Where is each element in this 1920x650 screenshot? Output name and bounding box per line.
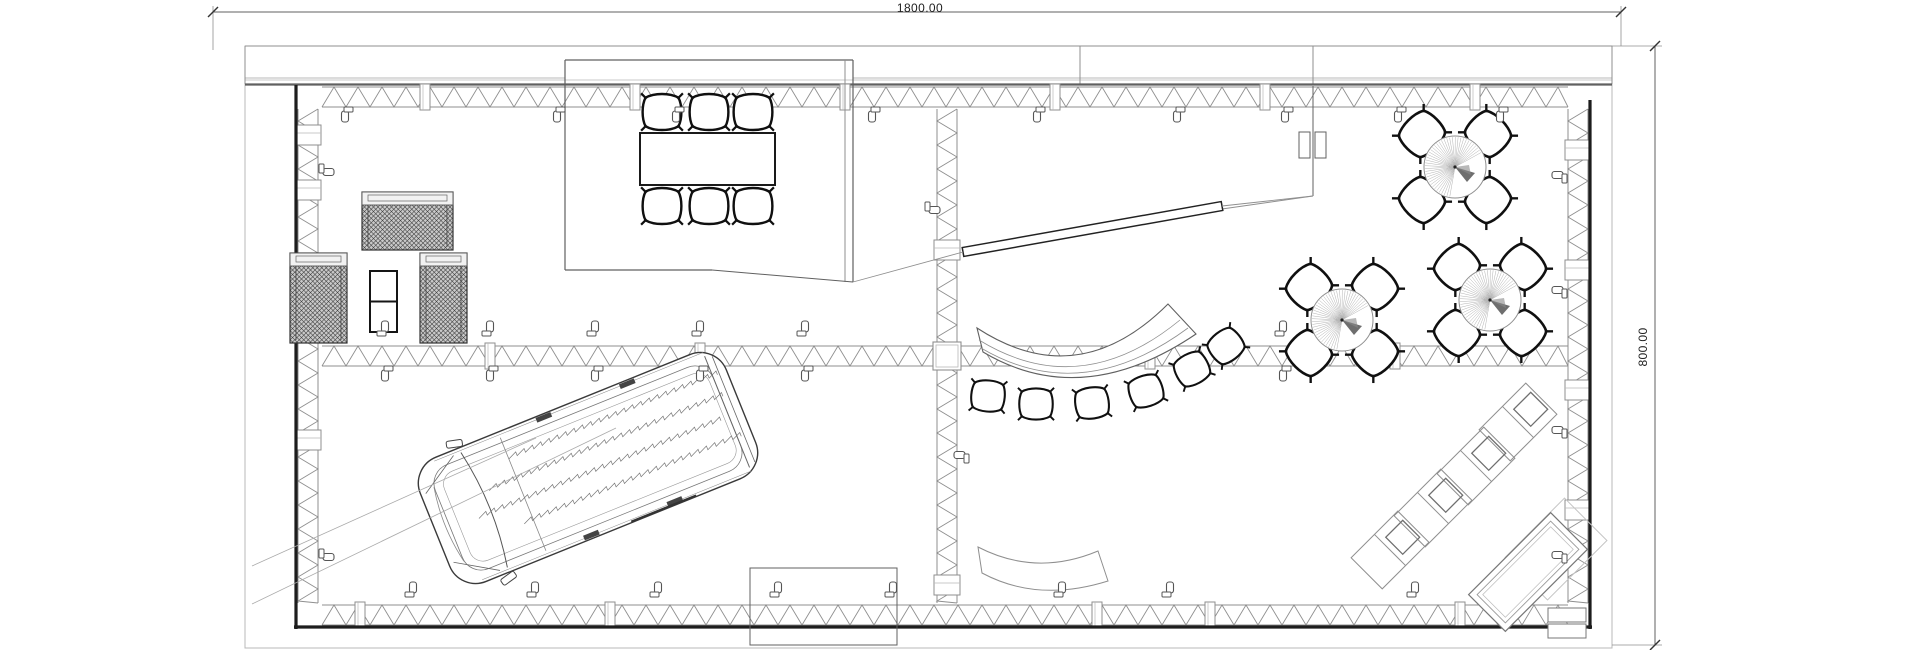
truss-clamp-icon (482, 321, 494, 336)
floor-plan-page: { "drawing": { "type": "architectural-fl… (0, 0, 1920, 650)
lounger (1437, 427, 1515, 505)
counter-stool (1018, 388, 1054, 420)
lounger (1394, 469, 1472, 547)
truss-clamp-icon (1552, 172, 1567, 184)
counter-stool (1202, 322, 1250, 370)
meeting-chair (641, 187, 683, 224)
truss-clamp-icon (802, 366, 814, 381)
truss-clamp-icon (954, 452, 969, 464)
counter-stool (969, 378, 1008, 413)
lounger (1351, 511, 1429, 589)
truss-clamp-icon (869, 107, 881, 122)
lounger (1479, 383, 1557, 461)
meeting-chair (688, 93, 730, 130)
van-top-view (406, 334, 770, 602)
curved-bench (978, 547, 1108, 590)
truss-clamp-icon (692, 321, 704, 336)
meeting-chair (732, 93, 774, 130)
truss-clamp-icon (650, 582, 662, 597)
wall-junction (933, 342, 961, 370)
truss-clamp-icon (1552, 427, 1567, 439)
counter-stool (1072, 384, 1112, 421)
meeting-table-group (640, 93, 775, 224)
round-table (1424, 136, 1486, 198)
truss-clamp-icon (1162, 582, 1174, 597)
lounge-group (290, 192, 467, 343)
truss-clamp-icon (342, 107, 354, 122)
truss-clamp-icon (1282, 107, 1294, 122)
truss-clamp-icon (319, 164, 334, 176)
diagonal-counter (853, 196, 1313, 282)
counter-stool (1168, 346, 1215, 391)
truss-clamp-icon (592, 366, 604, 381)
glass-partition (1222, 86, 1326, 209)
round-table (1459, 269, 1521, 331)
meeting-chair (688, 187, 730, 224)
truss-clamp-icon (1407, 582, 1419, 597)
cafe-table-group (1427, 237, 1553, 363)
annex-outline (750, 568, 897, 645)
truss-clamp-icon (1395, 107, 1407, 122)
curved-counter (969, 304, 1251, 422)
sofa (362, 192, 453, 250)
wall-top-truss (322, 84, 1568, 110)
truss-clamp-icon (1174, 107, 1186, 122)
truss-clamp-icon (1034, 107, 1046, 122)
truss-clamp-icon (587, 321, 599, 336)
armchair (420, 253, 467, 343)
truss-clamp-icon (527, 582, 539, 597)
wall-bottom-truss (322, 602, 1568, 628)
cafe-table-group (1392, 104, 1518, 230)
truss-clamp-icon (885, 582, 897, 597)
cafe-table-group (1279, 257, 1405, 383)
dimension-height-label: 800.00 (1636, 327, 1650, 366)
truss-clamp-icon (770, 582, 782, 597)
counter-stool (1124, 370, 1168, 412)
truss-clamp-icon (382, 366, 394, 381)
wall-left-truss (295, 109, 321, 603)
wall-right-truss (1565, 109, 1591, 603)
truss-clamp-icon (925, 202, 940, 214)
truss-clamp-icon (1552, 287, 1567, 299)
truss-clamp-icon (554, 107, 566, 122)
meeting-chair (732, 187, 774, 224)
truss-clamp-icon (1497, 107, 1509, 122)
truss-clamp-icon (1275, 321, 1287, 336)
truss-clamp-icon (319, 549, 334, 561)
truss-clamp-icon (405, 582, 417, 597)
armchair (290, 253, 347, 343)
truss-clamp-icon (1280, 366, 1292, 381)
top-fascia-band (245, 46, 1612, 85)
truss-clamp-icon (797, 321, 809, 336)
dimension-width-label: 1800.00 (897, 1, 943, 15)
floor-plan-svg (0, 0, 1920, 650)
round-table (1311, 289, 1373, 351)
